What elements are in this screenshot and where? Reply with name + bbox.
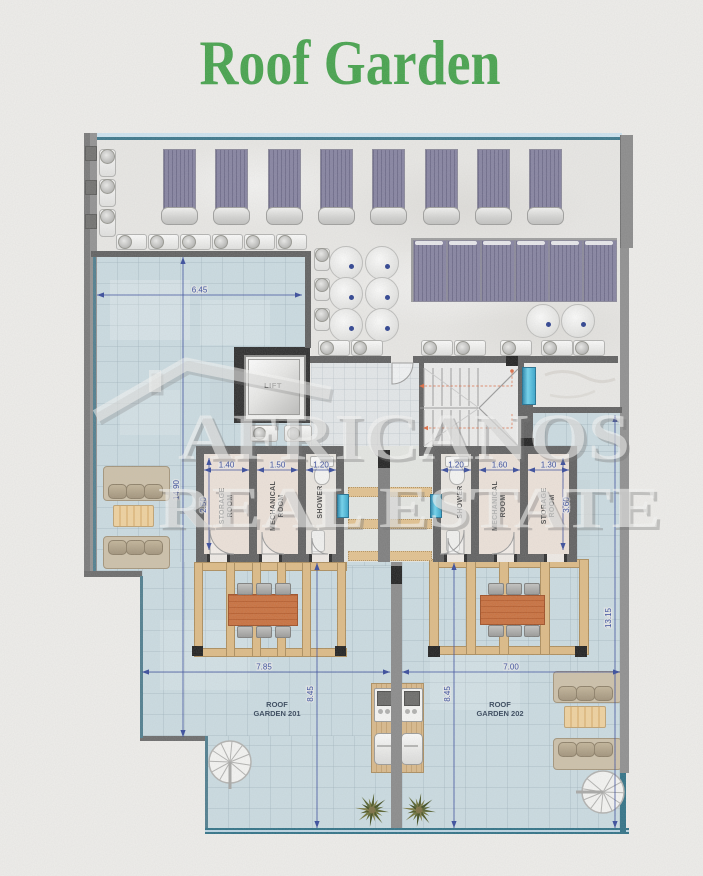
svg-text:REAL ESTATE: REAL ESTATE: [158, 475, 661, 540]
svg-text:AFRICANOS: AFRICANOS: [178, 401, 630, 474]
